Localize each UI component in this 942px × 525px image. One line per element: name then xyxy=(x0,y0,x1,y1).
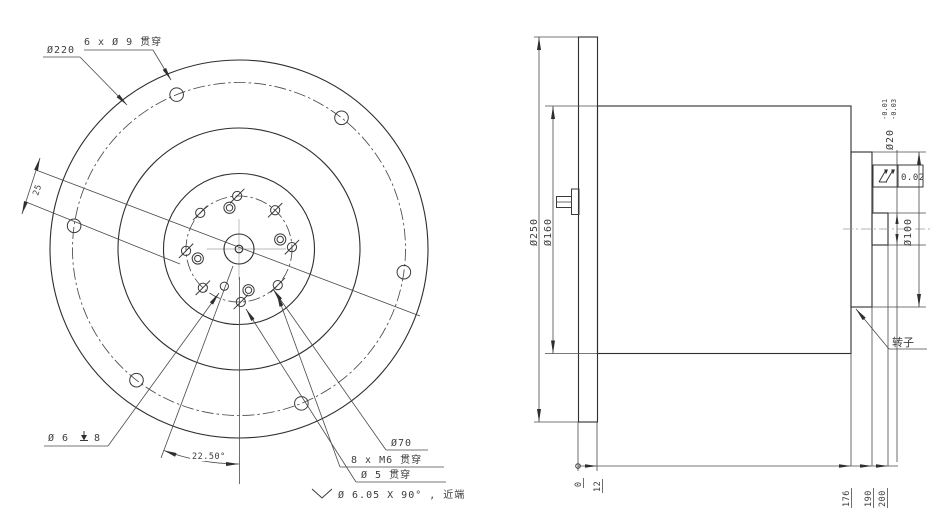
body-od-text: Ø160 xyxy=(542,218,554,246)
dim-body-od: Ø160 xyxy=(542,106,597,354)
rotor-section xyxy=(851,152,872,307)
cad-drawing-page: 25 Ø220 6 x Ø 9 贯穿 Ø 6 8 xyxy=(0,0,942,525)
hub-bcd-text: Ø70 xyxy=(391,437,412,449)
center-crosshair xyxy=(207,219,286,280)
center-hole-leader: Ø 5 贯穿 Ø 6.05 X 90° , 近端 xyxy=(246,309,465,501)
ordinate-176: 176 xyxy=(842,490,852,507)
tapped-holes-leader: 8 x M6 贯穿 xyxy=(277,294,444,467)
bolt-pattern-text: 6 x Ø 9 贯穿 xyxy=(84,35,162,48)
hub-bcd-leader: Ø70 xyxy=(273,289,428,450)
countersink-icon xyxy=(312,489,332,498)
counterbore-hole-6-inner xyxy=(277,236,283,242)
blind-hole-text-prefix: Ø 6 xyxy=(48,432,69,444)
blind-hole-text-depth: 8 xyxy=(94,433,101,444)
ordinate-12: 12 xyxy=(593,481,603,492)
runout-frame: 0.02 xyxy=(873,165,925,213)
engineering-drawing: 25 Ø220 6 x Ø 9 贯穿 Ø 6 8 xyxy=(0,0,942,525)
through-hole-9 xyxy=(335,111,349,125)
diametral-line xyxy=(36,170,420,316)
flange-section xyxy=(579,37,598,422)
hole-axis-line xyxy=(26,202,180,264)
counterbore-hole-6 xyxy=(192,253,203,264)
counterbore-hole-6-inner xyxy=(245,287,251,293)
bolt-pattern-leader: 6 x Ø 9 贯穿 xyxy=(84,35,171,80)
body-section xyxy=(598,106,852,354)
ordinate-0: 0 xyxy=(574,481,584,487)
counterbore-hole-6 xyxy=(243,285,254,296)
shaft-tol-lower: -0.03 xyxy=(890,99,898,120)
flange-od-text: Ø250 xyxy=(528,218,540,246)
rotor-od-text: Ø100 xyxy=(902,218,914,246)
front-view: 25 Ø220 6 x Ø 9 贯穿 Ø 6 8 xyxy=(22,35,465,501)
total-runout-icon xyxy=(879,170,895,183)
angle-dimension: 22.50° xyxy=(161,266,240,484)
counterbore-hole-6-inner xyxy=(226,205,232,211)
center-hole-text: Ø 5 贯穿 xyxy=(361,468,411,481)
ordinate-190: 190 xyxy=(864,490,874,507)
offset-dim-text: 25 xyxy=(31,183,44,197)
counterbore-hole-6 xyxy=(224,202,235,213)
ordinate-200: 200 xyxy=(878,490,888,507)
ordinate-dimensions: 0 12 176 190 200 xyxy=(574,245,898,508)
shaft-d-text: Ø20 xyxy=(884,129,896,150)
depth-icon xyxy=(80,431,88,441)
side-outline xyxy=(557,37,932,422)
rotor-label-leader: 转子 xyxy=(856,309,927,349)
counterbore-hole-6-inner xyxy=(195,255,201,261)
bcd220-text: Ø220 xyxy=(47,44,75,56)
offset-25-dimension: 25 xyxy=(22,158,420,316)
countersink-text: Ø 6.05 X 90° , 近端 xyxy=(338,488,465,501)
bcd220-leader: Ø220 xyxy=(43,44,127,105)
shaft-tol-upper: -0.01 xyxy=(881,99,889,120)
tapped-holes-text: 8 x M6 贯穿 xyxy=(351,453,422,466)
counterbore-hole-6 xyxy=(275,234,286,245)
blind-hole-leader: Ø 6 8 xyxy=(44,293,219,446)
rotor-label-text: 转子 xyxy=(892,335,914,349)
runout-tol-text: 0.02 xyxy=(901,173,925,183)
angle-dim-text: 22.50° xyxy=(192,452,226,462)
side-view: Ø250 Ø160 Ø100 Ø20 -0.01 -0.03 xyxy=(528,37,931,508)
connector-base xyxy=(572,189,580,215)
